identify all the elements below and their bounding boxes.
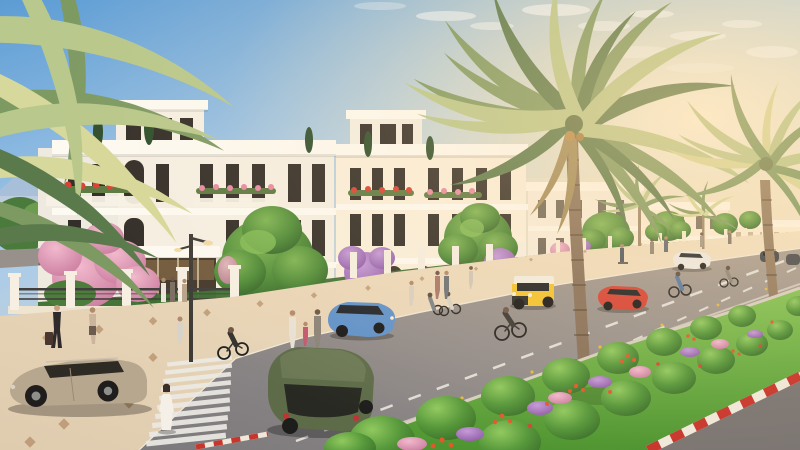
warm-light-overlay	[0, 0, 800, 450]
render-image	[0, 0, 800, 450]
villa-street-scene	[0, 0, 800, 450]
